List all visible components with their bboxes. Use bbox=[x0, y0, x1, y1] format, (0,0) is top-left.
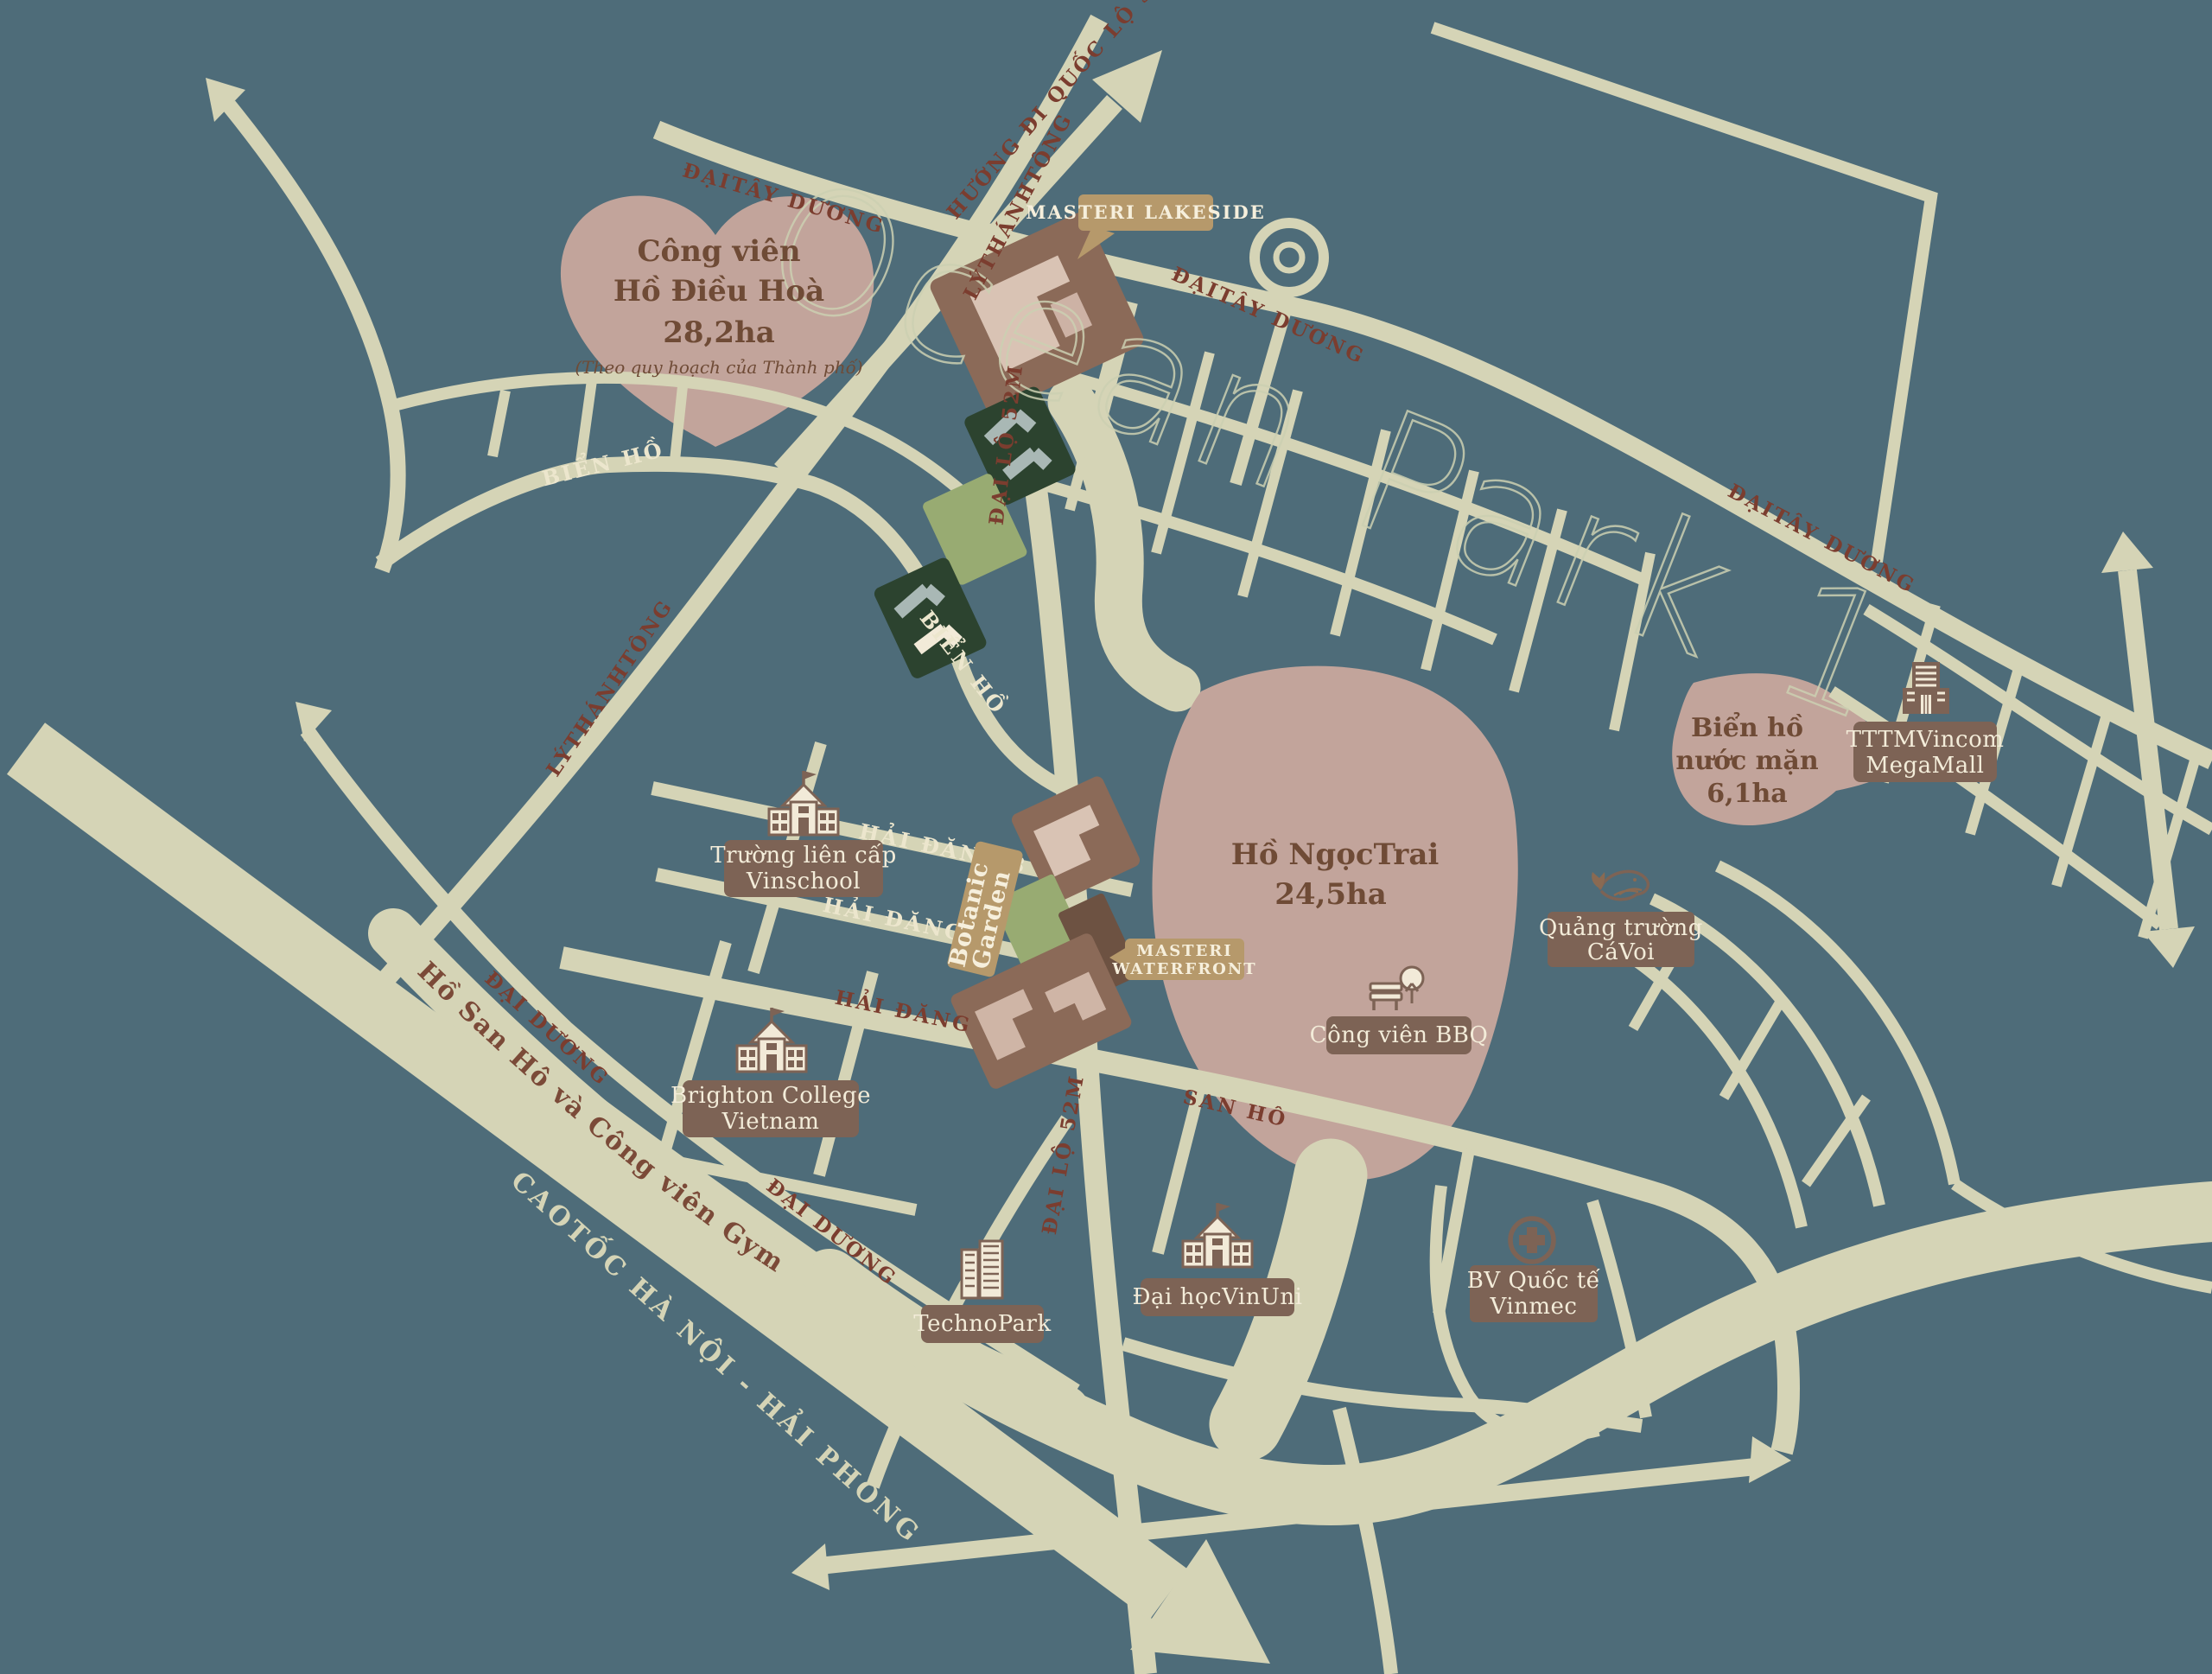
svg-text:Hồ NgọcTrai: Hồ NgọcTrai bbox=[1231, 837, 1440, 872]
office-building-icon bbox=[962, 1241, 1002, 1298]
svg-text:Vinmec: Vinmec bbox=[1490, 1294, 1578, 1320]
svg-text:Brighton College: Brighton College bbox=[671, 1083, 871, 1109]
callout-masteri-waterfront[interactable]: MASTERI WATERFRONT bbox=[1109, 939, 1257, 980]
svg-text:CáVoi: CáVoi bbox=[1587, 939, 1655, 965]
svg-text:Đại họcVinUni: Đại họcVinUni bbox=[1133, 1284, 1303, 1310]
svg-text:MASTERI: MASTERI bbox=[1136, 942, 1232, 960]
svg-text:MASTERI LAKESIDE: MASTERI LAKESIDE bbox=[1026, 201, 1265, 223]
svg-text:BV Quốc tế: BV Quốc tế bbox=[1467, 1268, 1601, 1294]
ocean-park-map: Ocean Park 1 Công viên Hồ Điều Hoà 28,2h… bbox=[0, 0, 2212, 1674]
map-canvas: Ocean Park 1 Công viên Hồ Điều Hoà 28,2h… bbox=[0, 0, 2212, 1674]
svg-text:Quảng trường: Quảng trường bbox=[1539, 915, 1703, 941]
svg-text:Hồ Điều Hoà: Hồ Điều Hoà bbox=[613, 274, 824, 309]
svg-text:Biển hồ: Biển hồ bbox=[1691, 711, 1803, 743]
svg-text:WATERFRONT: WATERFRONT bbox=[1111, 960, 1256, 978]
svg-text:28,2ha: 28,2ha bbox=[663, 315, 775, 350]
svg-text:(Theo quy hoạch của Thành phố): (Theo quy hoạch của Thành phố) bbox=[575, 357, 862, 378]
svg-text:24,5ha: 24,5ha bbox=[1274, 877, 1387, 912]
svg-text:Công viên BBQ: Công viên BBQ bbox=[1310, 1022, 1489, 1048]
svg-text:nước mặn: nước mặn bbox=[1675, 746, 1819, 776]
svg-text:Vietnam: Vietnam bbox=[721, 1109, 820, 1135]
svg-text:Trường liên cấp: Trường liên cấp bbox=[710, 843, 897, 869]
svg-text:Công viên: Công viên bbox=[637, 234, 800, 269]
svg-text:Vinschool: Vinschool bbox=[746, 869, 861, 894]
svg-text:TTTMVincom: TTTMVincom bbox=[1847, 727, 2005, 753]
svg-text:6,1ha: 6,1ha bbox=[1707, 779, 1787, 809]
svg-text:MegaMall: MegaMall bbox=[1866, 753, 1985, 779]
svg-text:TechnoPark: TechnoPark bbox=[913, 1311, 1051, 1337]
